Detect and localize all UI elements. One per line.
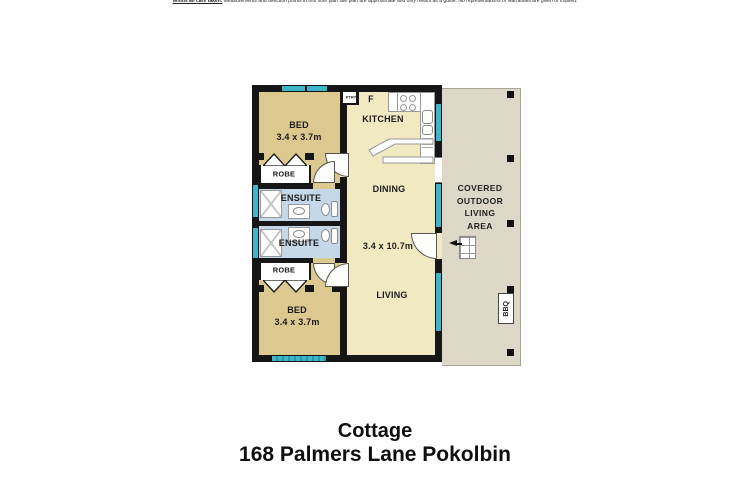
outdoor-label-line: COVERED [444, 182, 516, 195]
bbq-unit: BBQ [498, 293, 514, 324]
window-left-ensuite2 [252, 227, 259, 259]
kitchen-island-bench [367, 137, 437, 165]
cooktop-burner [409, 104, 416, 111]
shower-1 [260, 190, 282, 218]
entry-steps [459, 236, 476, 259]
toilet-1-tank [331, 201, 338, 217]
sink-bowl-1 [422, 110, 433, 124]
bbq-label: BBQ [503, 301, 510, 317]
cooktop-burner [400, 104, 407, 111]
vanity-2-basin [293, 230, 305, 238]
window-left-ensuite1 [252, 184, 259, 218]
entry-arrow-stem [456, 243, 462, 245]
dining-label: DINING [373, 184, 406, 194]
toilet-2-bowl [321, 229, 330, 242]
disclaimer-body: Measurements and direction points in thi… [222, 0, 577, 4]
window-bottom-bed2 [271, 355, 327, 362]
disclaimer-text: Whilst all care taken: Measurements and … [0, 0, 750, 5]
pantry-label: PTRY [346, 95, 357, 100]
veranda-post [507, 155, 514, 162]
fridge-label: F [368, 94, 374, 104]
sink-bowl-2 [422, 125, 433, 135]
veranda-post [507, 91, 514, 98]
vanity-1-basin [293, 207, 305, 215]
open-plan-size: 3.4 x 10.7m [363, 241, 413, 251]
window-right-living [435, 272, 442, 332]
floorplan-page: Whilst all care taken: Measurements and … [0, 0, 750, 500]
living-label: LIVING [376, 290, 407, 300]
outdoor-label-line: LIVING [444, 207, 516, 220]
bed2-label: BED [287, 305, 307, 315]
bed1-label: BED [289, 120, 309, 130]
toilet-1-bowl [321, 203, 330, 216]
cooktop-burner [409, 95, 416, 102]
robe-1-bifold-doors [263, 153, 307, 166]
ensuite2-label: ENSUITE [279, 238, 319, 248]
veranda-post [507, 349, 514, 356]
property-address: 168 Palmers Lane Pokolbin [0, 443, 750, 467]
kitchen-label: KITCHEN [362, 114, 403, 124]
robe1-label: ROBE [273, 170, 295, 179]
title-block: Cottage 168 Palmers Lane Pokolbin [0, 420, 750, 467]
ensuite1-label: ENSUITE [281, 193, 321, 203]
bed2-size: 3.4 x 3.7m [274, 317, 319, 327]
counter-divider [397, 92, 398, 112]
toilet-2-tank [331, 228, 338, 244]
veranda-post [507, 286, 514, 293]
outdoor-area-label: COVERED OUTDOOR LIVING AREA [444, 182, 516, 232]
cooktop-burner [400, 95, 407, 102]
property-name: Cottage [0, 420, 750, 443]
window-top-bed1 [281, 85, 328, 92]
window-divider [305, 86, 307, 91]
robe-2-bifold-doors [263, 280, 307, 293]
robe2-label: ROBE [273, 266, 295, 275]
outdoor-label-line: AREA [444, 220, 516, 233]
bed1-size: 3.4 x 3.7m [276, 132, 321, 142]
disclaimer-lead: Whilst all care taken: [173, 0, 223, 4]
outdoor-label-line: OUTDOOR [444, 195, 516, 208]
window-right-dining [435, 183, 442, 228]
doorway-gap [313, 183, 335, 189]
wall-stub [435, 142, 442, 157]
